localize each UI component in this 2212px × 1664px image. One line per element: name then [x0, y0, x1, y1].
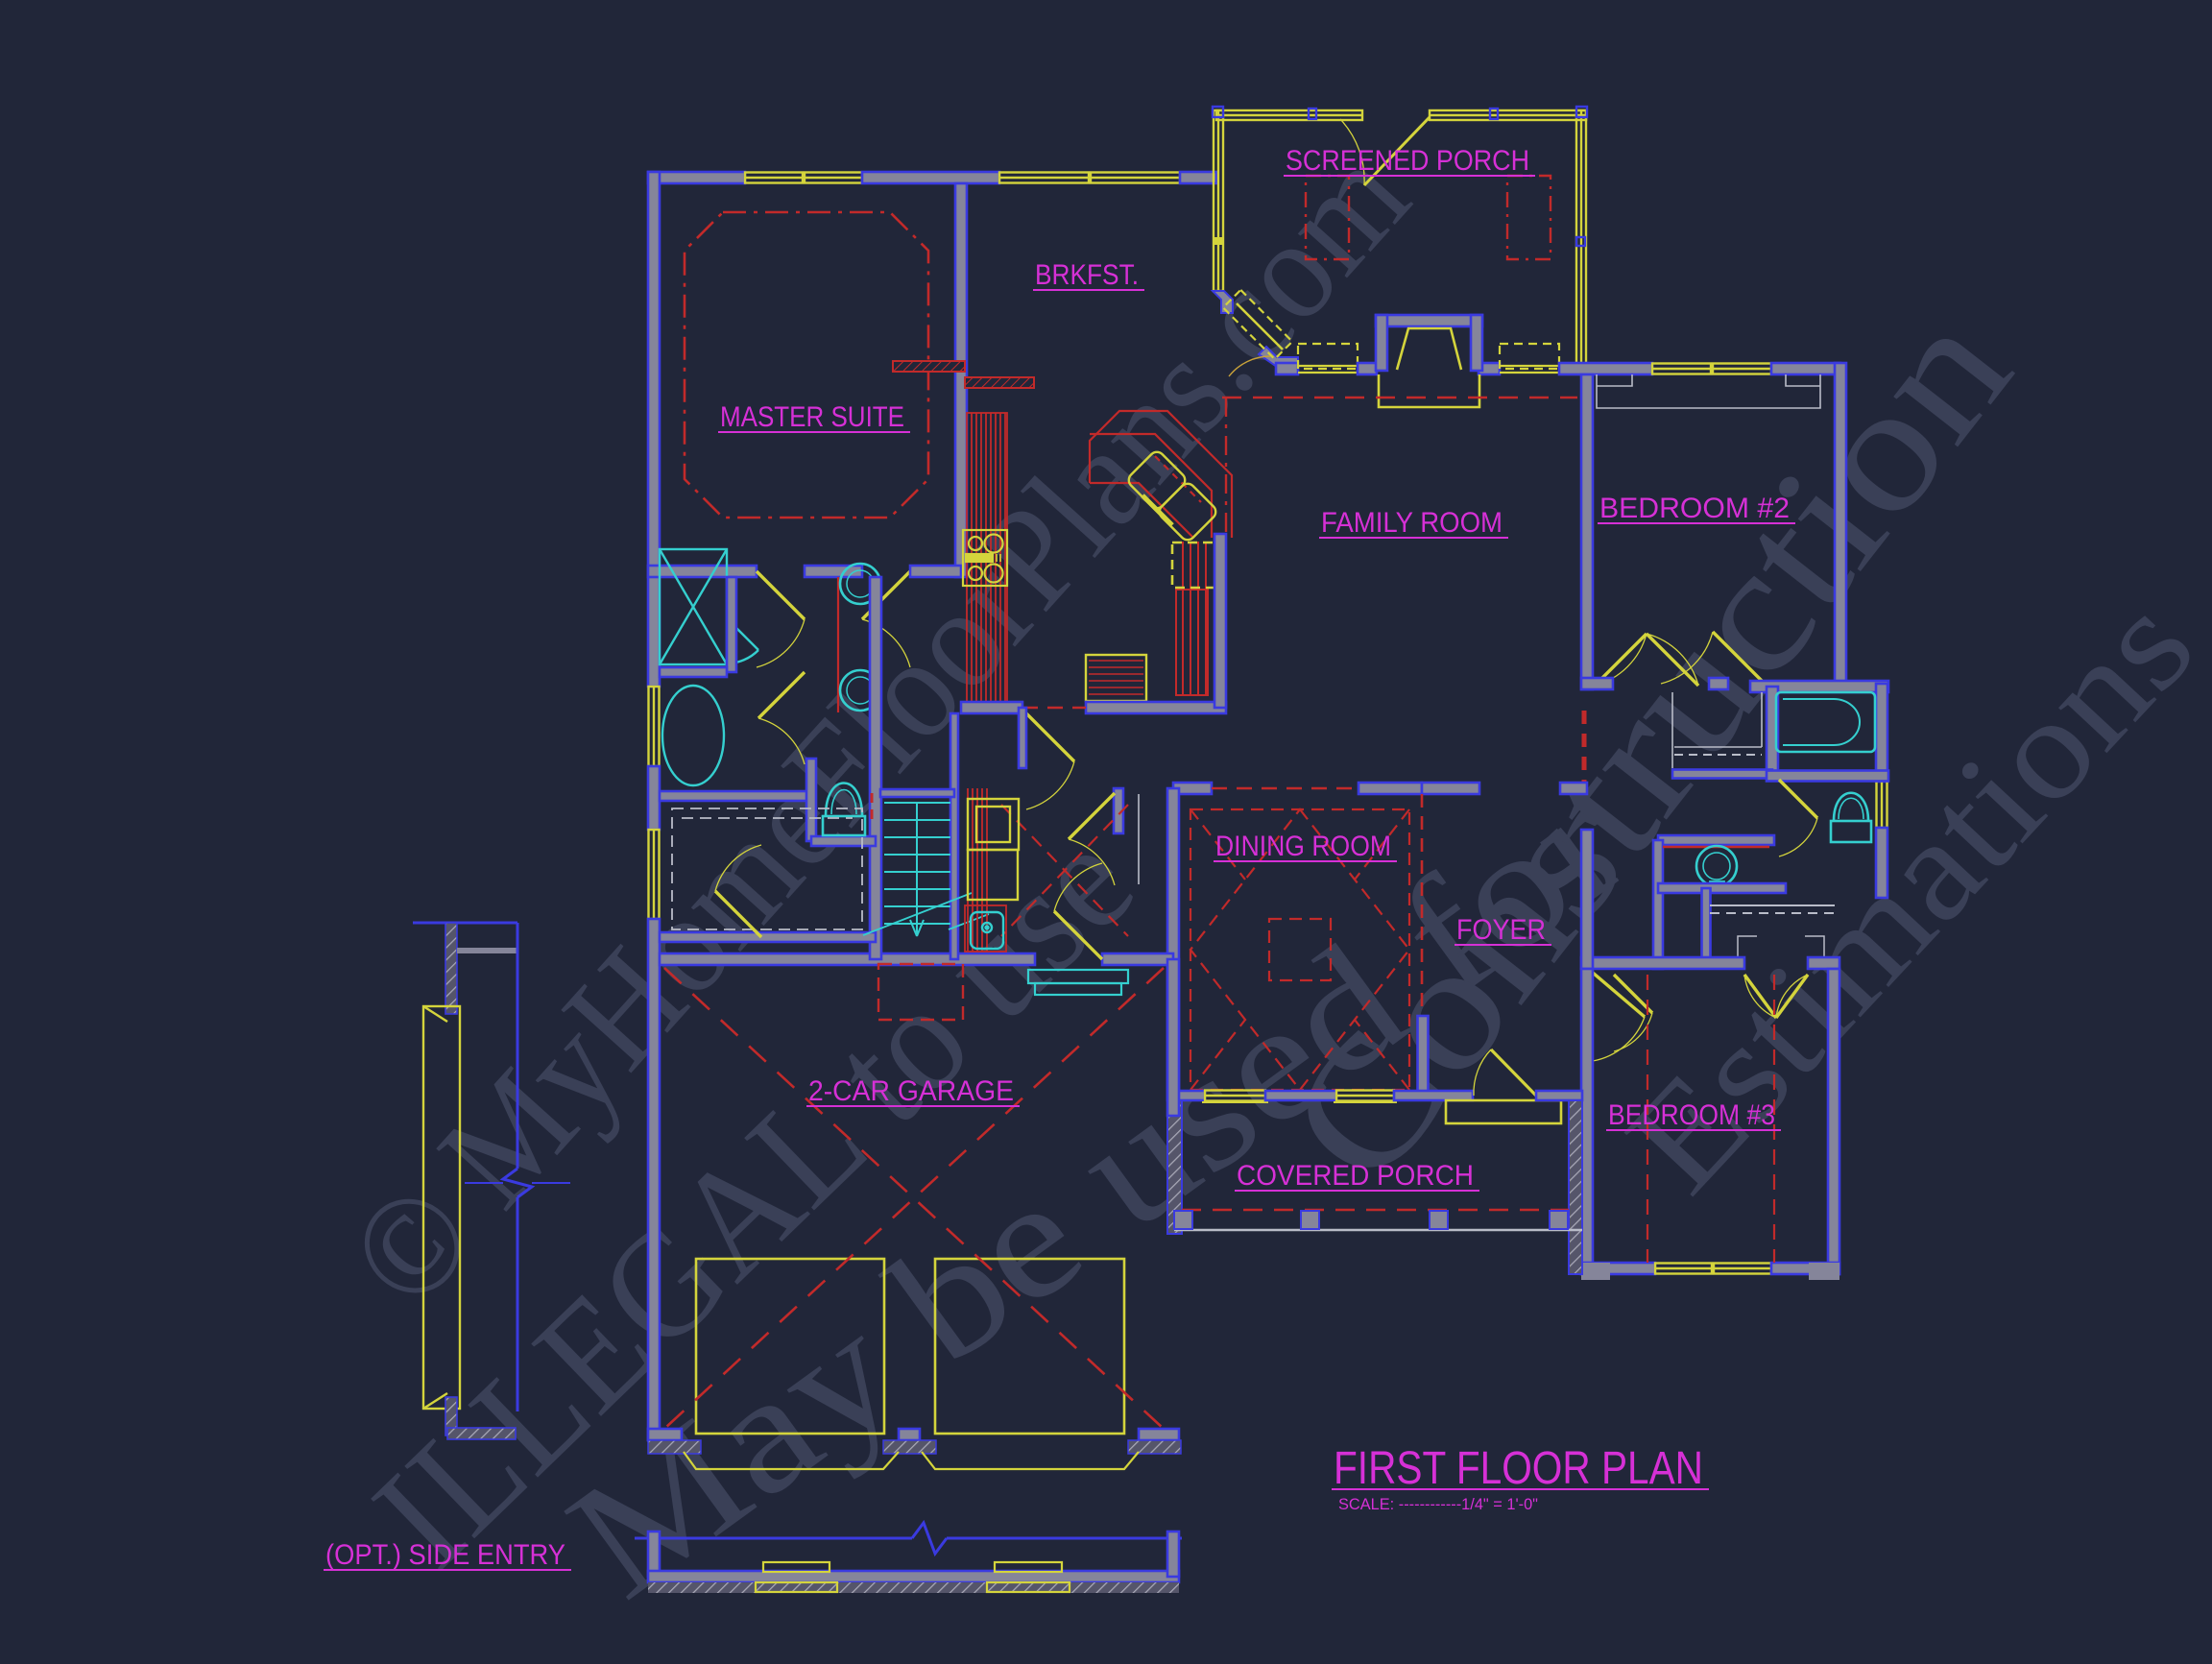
- svg-text:SCREENED PORCH: SCREENED PORCH: [1286, 145, 1529, 177]
- svg-text:BRKFST.: BRKFST.: [1035, 259, 1139, 291]
- svg-text:2-CAR GARAGE: 2-CAR GARAGE: [808, 1075, 1014, 1107]
- svg-text:SCALE: ------------1/4" = 1'-0: SCALE: ------------1/4" = 1'-0": [1338, 1495, 1538, 1513]
- svg-text:FAMILY ROOM: FAMILY ROOM: [1321, 507, 1503, 539]
- svg-text:DINING ROOM: DINING ROOM: [1215, 831, 1391, 862]
- svg-text:BEDROOM #3: BEDROOM #3: [1608, 1099, 1775, 1131]
- svg-text:COVERED PORCH: COVERED PORCH: [1237, 1160, 1474, 1192]
- svg-text:FOYER: FOYER: [1456, 914, 1546, 946]
- svg-text:MASTER SUITE: MASTER SUITE: [720, 401, 904, 433]
- svg-text:FIRST FLOOR PLAN: FIRST FLOOR PLAN: [1334, 1443, 1703, 1494]
- svg-text:BEDROOM #2: BEDROOM #2: [1599, 493, 1790, 524]
- svg-text:(OPT.) SIDE ENTRY: (OPT.) SIDE ENTRY: [325, 1539, 565, 1571]
